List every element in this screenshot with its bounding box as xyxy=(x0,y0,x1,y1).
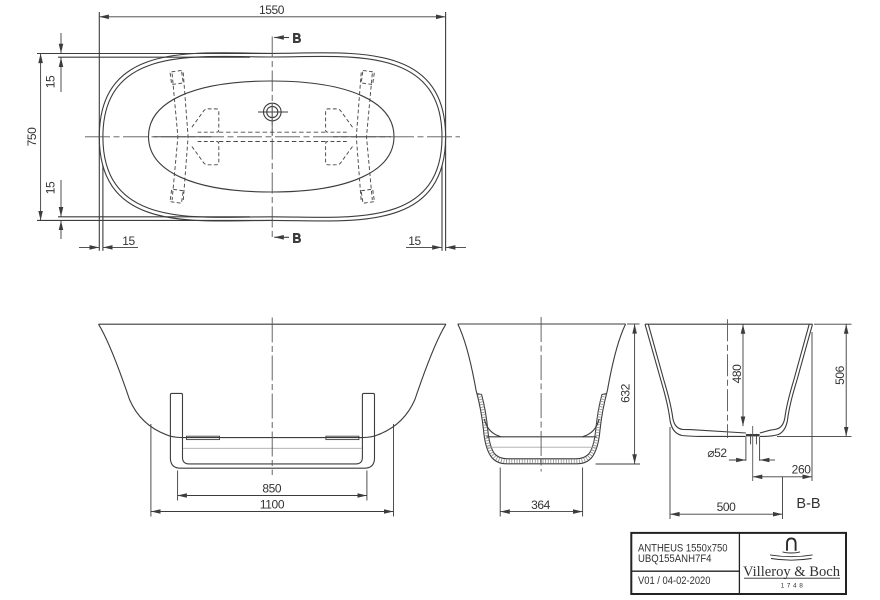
svg-text:480: 480 xyxy=(730,364,744,384)
svg-text:B: B xyxy=(293,230,302,245)
svg-text:850: 850 xyxy=(262,482,282,496)
svg-text:632: 632 xyxy=(618,383,632,403)
svg-text:V01 / 04-02-2020: V01 / 04-02-2020 xyxy=(638,575,711,587)
svg-text:500: 500 xyxy=(717,500,737,514)
svg-text:1550: 1550 xyxy=(259,3,285,17)
svg-text:260: 260 xyxy=(792,463,812,477)
svg-text:15: 15 xyxy=(408,234,421,248)
svg-text:1100: 1100 xyxy=(260,498,285,512)
svg-text:506: 506 xyxy=(833,365,847,385)
svg-text:Villeroy & Boch: Villeroy & Boch xyxy=(743,564,840,580)
svg-text:15: 15 xyxy=(122,234,135,248)
svg-text:1748: 1748 xyxy=(781,583,806,590)
svg-text:UBQ155ANH7F4: UBQ155ANH7F4 xyxy=(638,553,712,565)
svg-text:B: B xyxy=(293,30,302,45)
svg-text:⌀52: ⌀52 xyxy=(707,446,727,460)
svg-text:15: 15 xyxy=(44,181,58,194)
svg-text:750: 750 xyxy=(25,127,39,147)
svg-text:15: 15 xyxy=(44,75,58,88)
svg-text:B-B: B-B xyxy=(796,496,820,512)
svg-text:364: 364 xyxy=(531,498,551,512)
